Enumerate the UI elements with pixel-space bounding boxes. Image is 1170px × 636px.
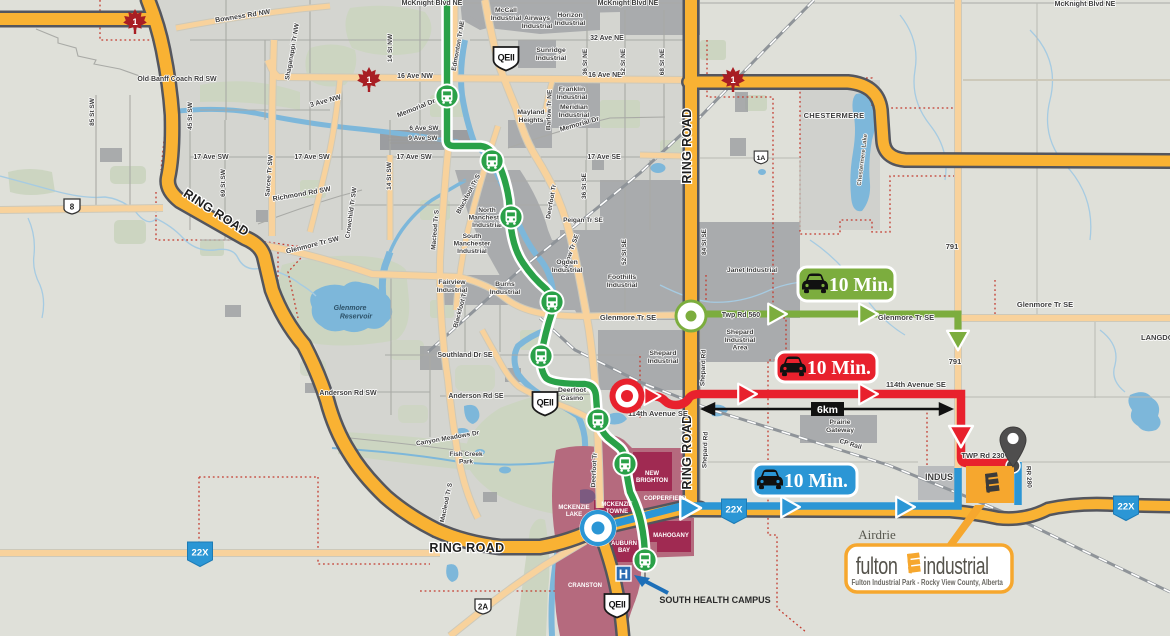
svg-text:Southland Dr SE: Southland Dr SE xyxy=(437,352,493,359)
svg-text:TWP Rd 230: TWP Rd 230 xyxy=(961,451,1004,460)
svg-text:9 Ave SW: 9 Ave SW xyxy=(408,135,438,142)
svg-text:14 St SW: 14 St SW xyxy=(386,161,393,190)
svg-text:Fulton Industrial Park - Rocky: Fulton Industrial Park - Rocky View Coun… xyxy=(851,579,1002,587)
svg-text:22X: 22X xyxy=(726,505,744,516)
svg-text:QEII: QEII xyxy=(609,600,626,610)
svg-text:Peigan Tr SE: Peigan Tr SE xyxy=(563,217,603,224)
svg-text:114th Avenue SE: 114th Avenue SE xyxy=(886,380,946,389)
svg-text:17 Ave SE: 17 Ave SE xyxy=(587,154,621,161)
svg-text:69 St SW: 69 St SW xyxy=(220,168,227,197)
svg-text:52 St SE: 52 St SE xyxy=(621,238,628,265)
svg-text:1: 1 xyxy=(132,17,138,28)
svg-text:Anderson Rd SE: Anderson Rd SE xyxy=(448,393,504,400)
svg-text:17 Ave SW: 17 Ave SW xyxy=(294,154,330,161)
svg-text:791: 791 xyxy=(946,242,959,251)
svg-text:Glenmore Tr SE: Glenmore Tr SE xyxy=(600,313,656,322)
svg-text:FoothillsIndustrial: FoothillsIndustrial xyxy=(607,274,638,289)
svg-text:84 St SE: 84 St SE xyxy=(701,228,708,255)
svg-text:8: 8 xyxy=(70,203,75,212)
svg-text:FranklinIndustrial: FranklinIndustrial xyxy=(557,86,588,101)
svg-text:McCallIndustrial: McCallIndustrial xyxy=(491,7,522,22)
svg-text:22X: 22X xyxy=(1118,502,1136,513)
svg-text:MAHOGANY: MAHOGANY xyxy=(653,533,689,539)
svg-text:Anderson Rd SW: Anderson Rd SW xyxy=(319,390,377,397)
svg-text:17 Ave SW: 17 Ave SW xyxy=(396,154,432,161)
svg-text:McKnight Blvd NE: McKnight Blvd NE xyxy=(598,0,659,7)
svg-text:6 Ave SW: 6 Ave SW xyxy=(409,125,439,132)
svg-text:Glenmore Tr SE: Glenmore Tr SE xyxy=(1017,300,1073,309)
svg-text:36 St SE: 36 St SE xyxy=(581,172,588,199)
svg-text:114th Avenue SE: 114th Avenue SE xyxy=(628,409,688,418)
svg-text:85 St SW: 85 St SW xyxy=(89,97,96,126)
svg-text:AirwaysIndustrial: AirwaysIndustrial xyxy=(522,15,553,30)
svg-text:McKnight Blvd NE: McKnight Blvd NE xyxy=(1055,1,1116,8)
svg-text:22X: 22X xyxy=(192,548,210,559)
svg-text:McKnight Blvd NE: McKnight Blvd NE xyxy=(402,0,463,7)
svg-text:QEII: QEII xyxy=(498,53,515,63)
svg-text:Glenmore Tr SE: Glenmore Tr SE xyxy=(878,313,934,322)
svg-text:Shepard Rd: Shepard Rd xyxy=(699,350,707,387)
svg-text:1: 1 xyxy=(366,75,372,86)
svg-text:RING ROAD: RING ROAD xyxy=(680,414,694,489)
svg-text:SunridgeIndustrial: SunridgeIndustrial xyxy=(536,47,567,62)
svg-text:Old Banff Coach Rd SW: Old Banff Coach Rd SW xyxy=(137,76,217,83)
svg-text:FairviewIndustrial: FairviewIndustrial xyxy=(437,279,468,294)
svg-text:Barlow Tr NE: Barlow Tr NE xyxy=(545,89,553,130)
svg-text:RR 280: RR 280 xyxy=(1024,466,1032,489)
svg-text:10 Min.: 10 Min. xyxy=(784,471,848,492)
svg-text:32 Ave NE: 32 Ave NE xyxy=(590,35,624,42)
svg-text:17 Ave SW: 17 Ave SW xyxy=(193,154,229,161)
svg-text:16 Ave NE: 16 Ave NE xyxy=(588,72,622,79)
svg-text:PrairieGateway: PrairieGateway xyxy=(826,419,854,434)
svg-text:791: 791 xyxy=(949,357,962,366)
svg-text:10 Min.: 10 Min. xyxy=(807,358,871,379)
svg-text:industrial: industrial xyxy=(923,553,989,579)
svg-text:LANGDON: LANGDON xyxy=(1141,333,1170,342)
svg-text:DeerfootCasino: DeerfootCasino xyxy=(558,387,587,402)
svg-text:Janet Industrial: Janet Industrial xyxy=(727,267,777,274)
svg-text:16 Ave NW: 16 Ave NW xyxy=(397,73,433,80)
svg-text:Airdrie: Airdrie xyxy=(858,527,896,542)
svg-text:COPPERFIELD: COPPERFIELD xyxy=(644,496,687,502)
svg-text:RING ROAD: RING ROAD xyxy=(429,541,504,555)
svg-text:Shepard Rd: Shepard Rd xyxy=(701,432,709,469)
svg-text:36 St NE: 36 St NE xyxy=(582,48,589,75)
svg-text:1: 1 xyxy=(730,75,736,86)
svg-text:10 Min.: 10 Min. xyxy=(829,275,893,296)
svg-text:68 St NE: 68 St NE xyxy=(659,48,666,75)
svg-text:CHESTERMERE: CHESTERMERE xyxy=(804,111,865,120)
svg-text:1A: 1A xyxy=(757,155,766,162)
svg-text:HorizonIndustrial: HorizonIndustrial xyxy=(555,12,586,27)
svg-text:QEII: QEII xyxy=(537,398,554,408)
svg-text:CRANSTON: CRANSTON xyxy=(568,583,602,589)
svg-text:14 St NW: 14 St NW xyxy=(387,33,394,62)
svg-text:45 St SW: 45 St SW xyxy=(187,101,194,130)
svg-text:Twp Rd 560: Twp Rd 560 xyxy=(722,312,760,319)
svg-text:52 St NE: 52 St NE xyxy=(620,48,627,75)
svg-text:MaylandHeights: MaylandHeights xyxy=(517,109,544,124)
svg-text:SOUTH HEALTH CAMPUS: SOUTH HEALTH CAMPUS xyxy=(659,595,770,605)
svg-text:INDUS: INDUS xyxy=(925,472,953,482)
svg-text:RING ROAD: RING ROAD xyxy=(680,108,694,183)
svg-text:MeridianIndustrial: MeridianIndustrial xyxy=(559,104,590,119)
svg-text:ShepardIndustrial: ShepardIndustrial xyxy=(648,350,679,365)
svg-text:fulton: fulton xyxy=(856,554,898,580)
svg-text:H: H xyxy=(619,567,628,582)
svg-text:6km: 6km xyxy=(817,404,838,416)
svg-text:2A: 2A xyxy=(478,603,488,612)
